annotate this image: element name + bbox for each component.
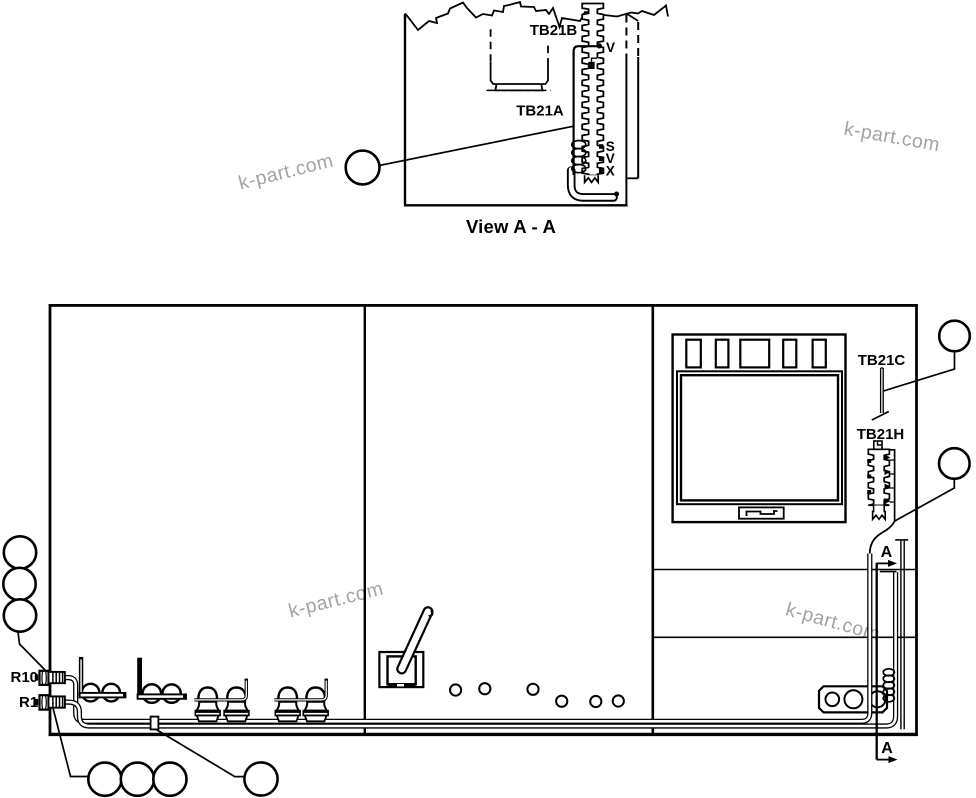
svg-text:R1: R1: [19, 694, 38, 711]
svg-text:TB21H: TB21H: [857, 426, 905, 443]
svg-text:A: A: [881, 740, 893, 757]
svg-text:TB21A: TB21A: [516, 103, 564, 120]
svg-text:TB21C: TB21C: [858, 352, 906, 369]
svg-text:X: X: [606, 163, 615, 178]
svg-text:R10: R10: [11, 669, 39, 686]
svg-text:A: A: [881, 544, 893, 561]
svg-text:View A - A: View A - A: [466, 216, 556, 237]
svg-text:V: V: [606, 40, 615, 55]
svg-text:TB21B: TB21B: [530, 22, 578, 39]
